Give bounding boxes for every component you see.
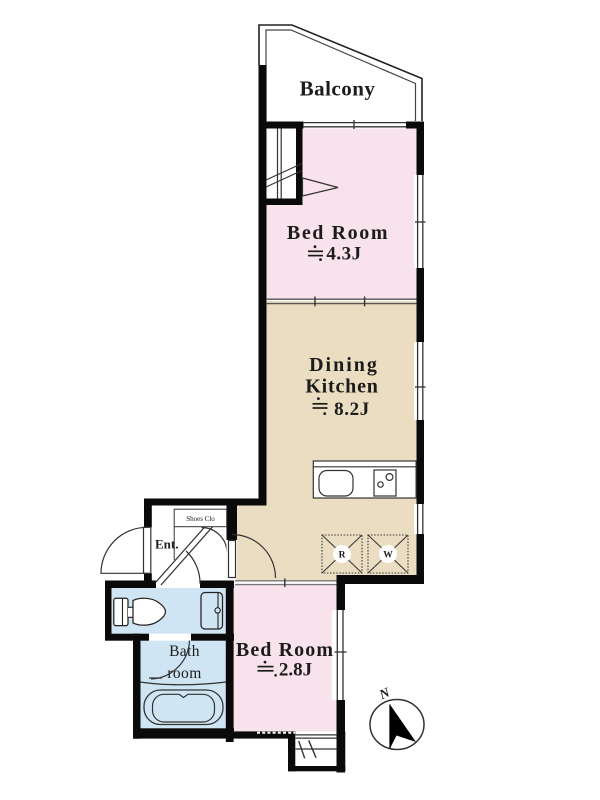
svg-text:Ent.: Ent. xyxy=(155,537,178,552)
svg-text:W: W xyxy=(383,551,393,561)
svg-text:Bed Room: Bed Room xyxy=(236,639,334,661)
svg-text:8.2J: 8.2J xyxy=(334,399,370,420)
svg-text:R: R xyxy=(339,551,346,561)
svg-text:room: room xyxy=(167,665,201,682)
svg-text:Bath: Bath xyxy=(169,643,200,660)
svg-text:Balcony: Balcony xyxy=(300,76,376,100)
svg-text:Bed Room: Bed Room xyxy=(287,222,389,244)
svg-text:Kitchen: Kitchen xyxy=(305,376,378,398)
svg-text:4.3J: 4.3J xyxy=(326,244,361,265)
svg-text:Shoes Clo: Shoes Clo xyxy=(186,515,215,523)
svg-text:Dining: Dining xyxy=(309,354,379,376)
svg-text:2.8J: 2.8J xyxy=(279,660,312,681)
